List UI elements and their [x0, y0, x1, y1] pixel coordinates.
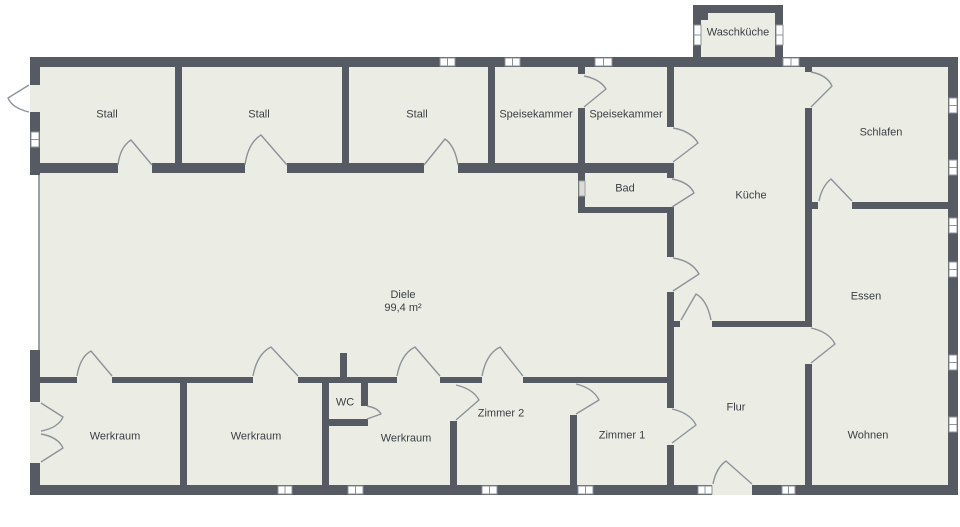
window-icon [278, 486, 292, 494]
window-icon [949, 417, 957, 432]
room-label-zimmer-2: Zimmer 2 [478, 408, 524, 421]
window-icon [949, 160, 957, 175]
schlafen-essen-wall [852, 202, 958, 209]
room-label-bad: Bad [615, 183, 635, 196]
room-label-speisekammer-1: Speisekammer [499, 109, 572, 122]
room-label-diele: Diele 99,4 m² [384, 289, 421, 315]
room-label-flur: Flur [727, 402, 746, 415]
window-icon [949, 218, 957, 233]
wc-bottom-wall [322, 419, 368, 426]
window-icon [595, 58, 612, 66]
floor-plan: Waschküche Stall Stall Stall Speisekamme… [0, 0, 960, 527]
window-icon [949, 355, 957, 370]
room-label-stall-2: Stall [248, 109, 269, 122]
window-icon [505, 58, 520, 66]
room-label-zimmer-1: Zimmer 1 [599, 430, 645, 443]
exterior-wall-top [30, 57, 958, 67]
diele-wall-stub [340, 353, 347, 377]
window-icon [776, 25, 783, 45]
exterior-wall-left [30, 57, 40, 85]
window-icon [440, 58, 455, 66]
window-icon [31, 132, 39, 147]
room-label-werkraum-3: Werkraum [381, 433, 432, 446]
room-label-schlafen: Schlafen [860, 127, 903, 140]
window-icon [694, 25, 701, 45]
room-label-wc: WC [336, 397, 354, 410]
room-label-stall-1: Stall [96, 109, 117, 122]
window-icon [782, 486, 795, 494]
diele-name: Diele [384, 289, 421, 302]
floor-plan-drawing [0, 0, 960, 527]
diele-area: 99,4 m² [384, 302, 421, 315]
bad-bottom-wall [578, 207, 674, 213]
room-label-kueche: Küche [735, 190, 766, 203]
window-icon [578, 486, 593, 494]
room-label-wohnen: Wohnen [848, 430, 889, 443]
room-label-werkraum-1: Werkraum [90, 431, 141, 444]
room-label-essen: Essen [851, 291, 882, 304]
room-label-waschkueche: Waschküche [707, 27, 770, 40]
door-exterior-left [8, 85, 29, 112]
window-icon [698, 486, 712, 494]
window-icon [348, 486, 363, 494]
window-icon-internal [579, 181, 585, 196]
room-label-speisekammer-2: Speisekammer [589, 109, 662, 122]
exterior-wall-bottom [30, 485, 712, 495]
window-icon [783, 58, 799, 66]
flur-top-wall [712, 321, 805, 327]
window-icon [949, 98, 957, 113]
window-icon [949, 262, 957, 277]
room-label-stall-3: Stall [406, 109, 427, 122]
window-icon [482, 486, 497, 494]
room-label-werkraum-2: Werkraum [231, 431, 282, 444]
